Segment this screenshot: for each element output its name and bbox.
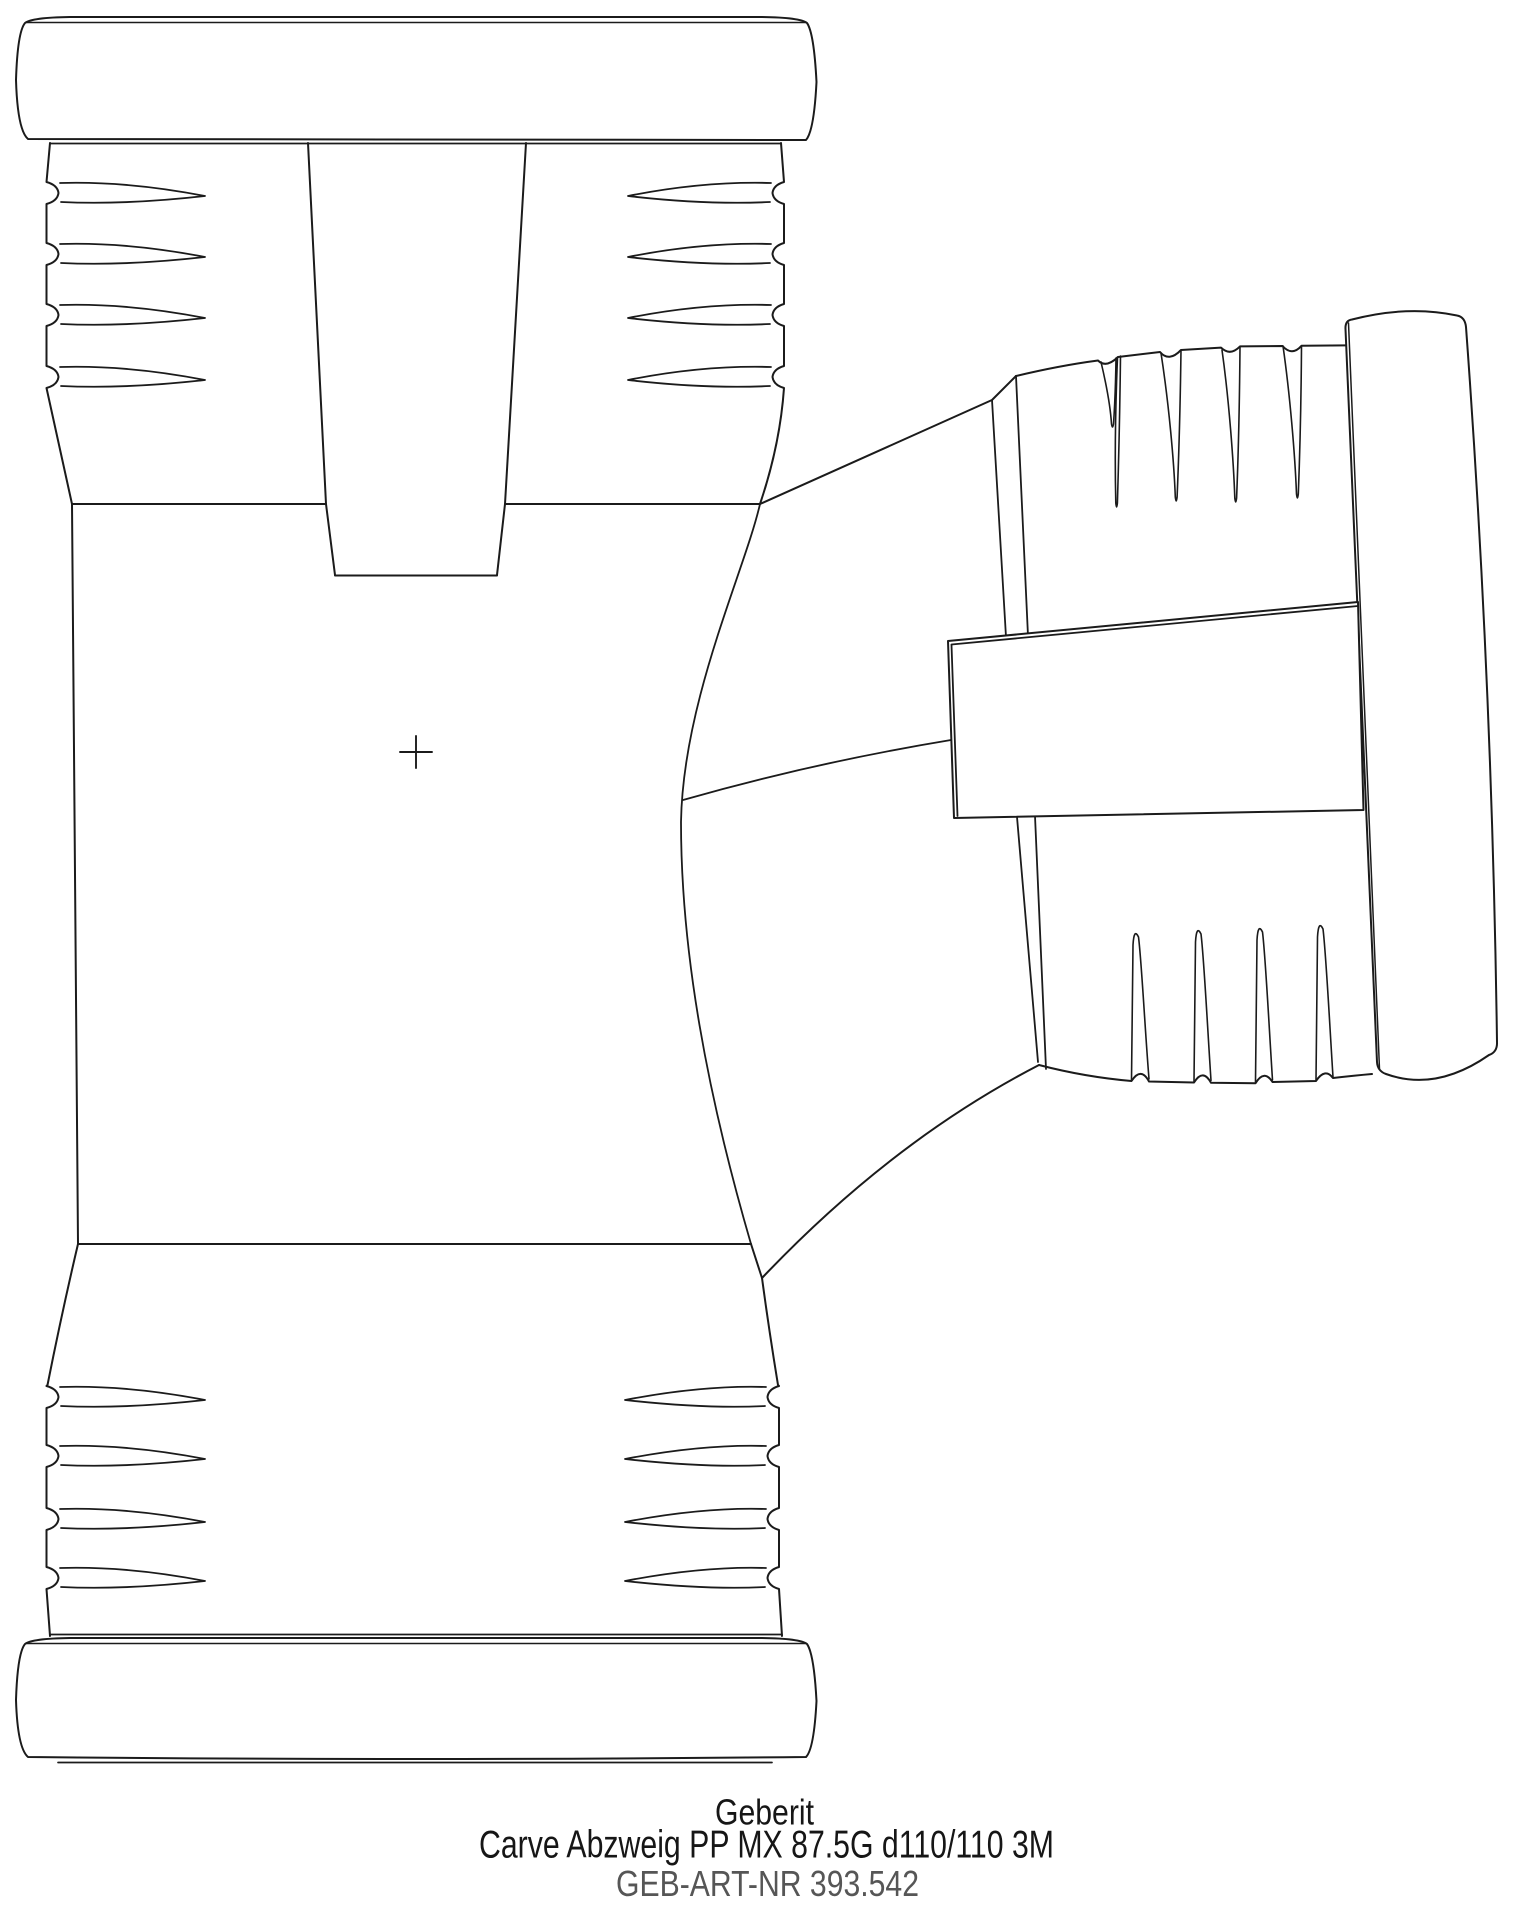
svg-text:Carve Abzweig PP MX 87.5G d110: Carve Abzweig PP MX 87.5G d110/110 3M [479, 1824, 1054, 1867]
svg-text:GEB-ART-NR 393.542: GEB-ART-NR 393.542 [616, 1864, 919, 1904]
